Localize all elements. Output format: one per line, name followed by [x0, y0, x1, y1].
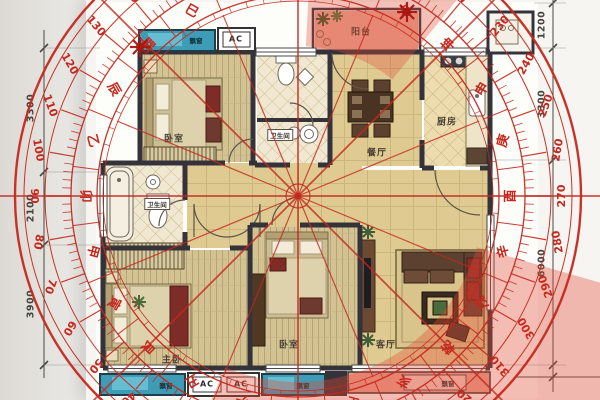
- room-label-master-bedroom: 主卧: [162, 353, 182, 366]
- bed-bottom-bedroom: [266, 232, 328, 318]
- room-label-bathroom-top: 卫生间: [267, 129, 293, 141]
- dim-left-3900: 3900: [26, 290, 37, 318]
- bay-window-label-bottom-right: 飘窗: [442, 378, 455, 388]
- bed-master: [105, 272, 191, 361]
- room-label-living-room: 客厅: [376, 338, 396, 351]
- dim-left-2100: 2100: [26, 194, 37, 222]
- bay-window-label-bottom-left: 飘窗: [160, 380, 173, 390]
- floorplan-screenshot-root: 卧室 卫生间 阳台 厨房 餐厅 卫生间 主卧 卧室 客厅 飘窗 飘窗 飘窗 飘窗…: [0, 0, 600, 400]
- dresser-bottom-bedroom: [252, 274, 265, 346]
- room-label-bedroom-top: 卧室: [164, 132, 184, 145]
- dim-right-6000: 6000: [537, 249, 548, 277]
- floor-plan-graphics: [0, 0, 600, 400]
- ac-label-top: AC: [229, 35, 243, 44]
- room-label-dining: 餐厅: [367, 146, 387, 159]
- bay-window-label-top: 飘窗: [190, 35, 203, 45]
- bay-window-label-bottom-mid: 飘窗: [297, 380, 310, 390]
- room-label-kitchen: 厨房: [437, 115, 457, 128]
- dim-right-1200: 1200: [537, 11, 548, 39]
- ac-label-bottom-left: AC: [200, 380, 214, 389]
- room-label-balcony: 阳台: [351, 25, 371, 38]
- room-label-bathroom-left: 卫生间: [144, 198, 170, 210]
- wardrobe-top-bedroom: [144, 147, 216, 162]
- dim-right-3300: 3300: [537, 90, 548, 118]
- dim-left-3300: 3300: [26, 94, 37, 122]
- room-label-bedroom-bottom: 卧室: [279, 338, 299, 351]
- ac-label-bottom-right: AC: [234, 380, 248, 389]
